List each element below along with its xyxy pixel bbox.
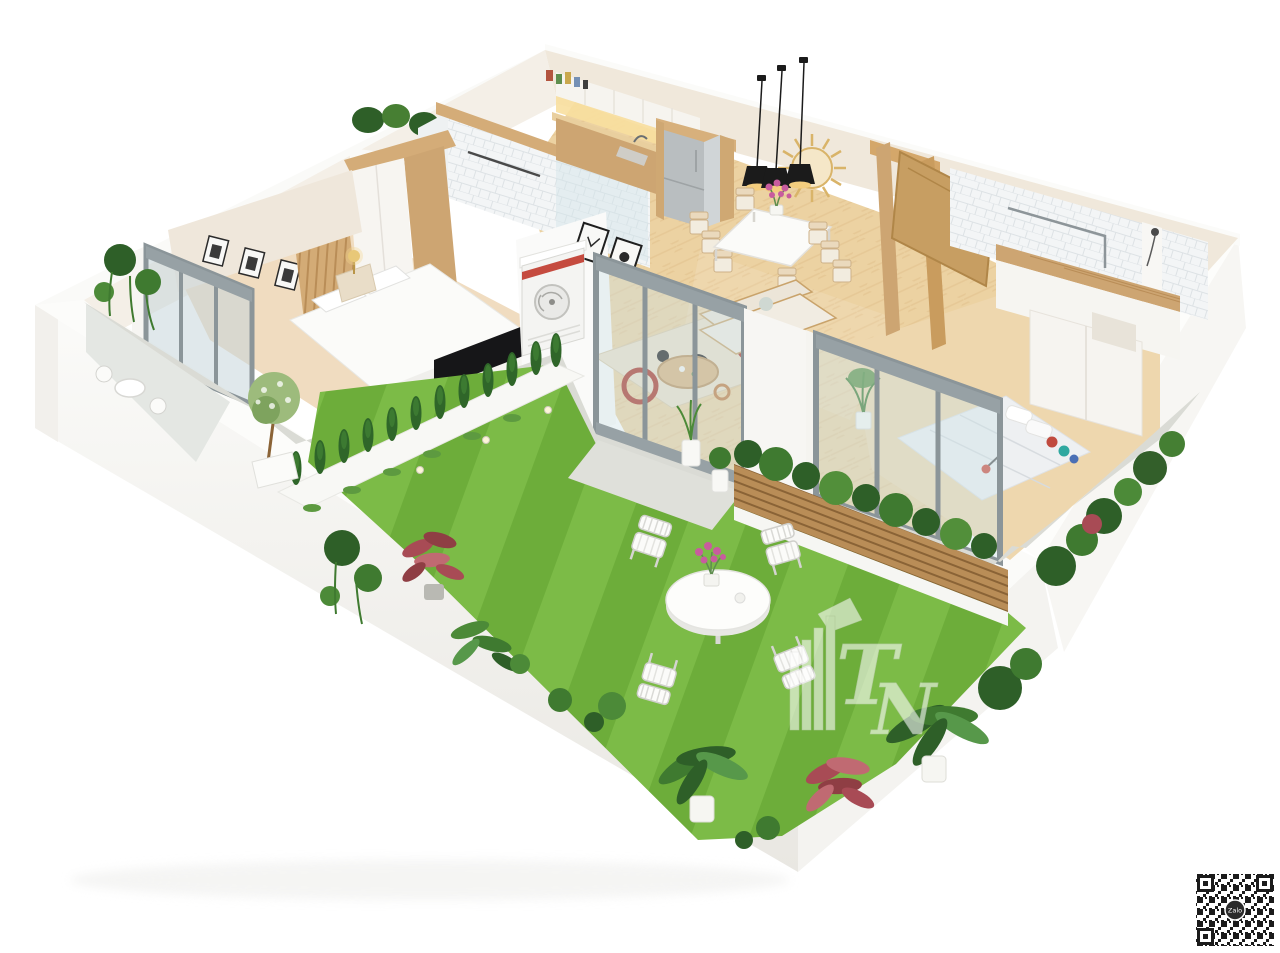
fridge-cabinet-left [656, 120, 664, 220]
orchid-pot [704, 574, 719, 586]
bedside-lamp [348, 250, 360, 262]
logo-bar [814, 628, 823, 730]
dining-chair [736, 188, 754, 210]
qr-finder-topright [1256, 875, 1273, 892]
screenshot-canvas: T N Zalo [0, 0, 1280, 953]
accent-pillow [1047, 437, 1058, 448]
patio-table [115, 379, 145, 397]
accent-pillow [1059, 446, 1070, 457]
floor-plan-render: T N Zalo [0, 0, 1280, 953]
logo-bar [790, 652, 799, 730]
table-item [735, 593, 745, 603]
fridge-cabinet-right [720, 135, 734, 222]
logo-letter-n: N [870, 668, 939, 751]
qr-code: Zalo [1192, 870, 1278, 950]
accent-pillow [1070, 455, 1079, 464]
red-plant [1082, 514, 1102, 534]
tree-foliage-shade [252, 396, 280, 424]
dining-chair [833, 260, 851, 282]
tall-white-pot [682, 440, 700, 466]
qr-center-label: Zalo [1228, 907, 1242, 915]
ac-fan-hub [549, 299, 555, 305]
plant-pot [690, 796, 714, 822]
plant-pot [922, 756, 946, 782]
ground-shadow [70, 860, 790, 900]
shower-head [1151, 228, 1159, 236]
logo-bar [826, 616, 835, 730]
patio-chair [96, 366, 112, 382]
outer-wall-west-corner [35, 305, 58, 442]
white-pot [712, 470, 728, 492]
patio-chair [150, 398, 166, 414]
logo-bar [802, 640, 811, 730]
plant-pot [424, 584, 444, 600]
qr-finder-topleft [1197, 875, 1214, 892]
qr-finder-bottomleft [1197, 928, 1214, 945]
sofa-pillow [759, 297, 773, 311]
